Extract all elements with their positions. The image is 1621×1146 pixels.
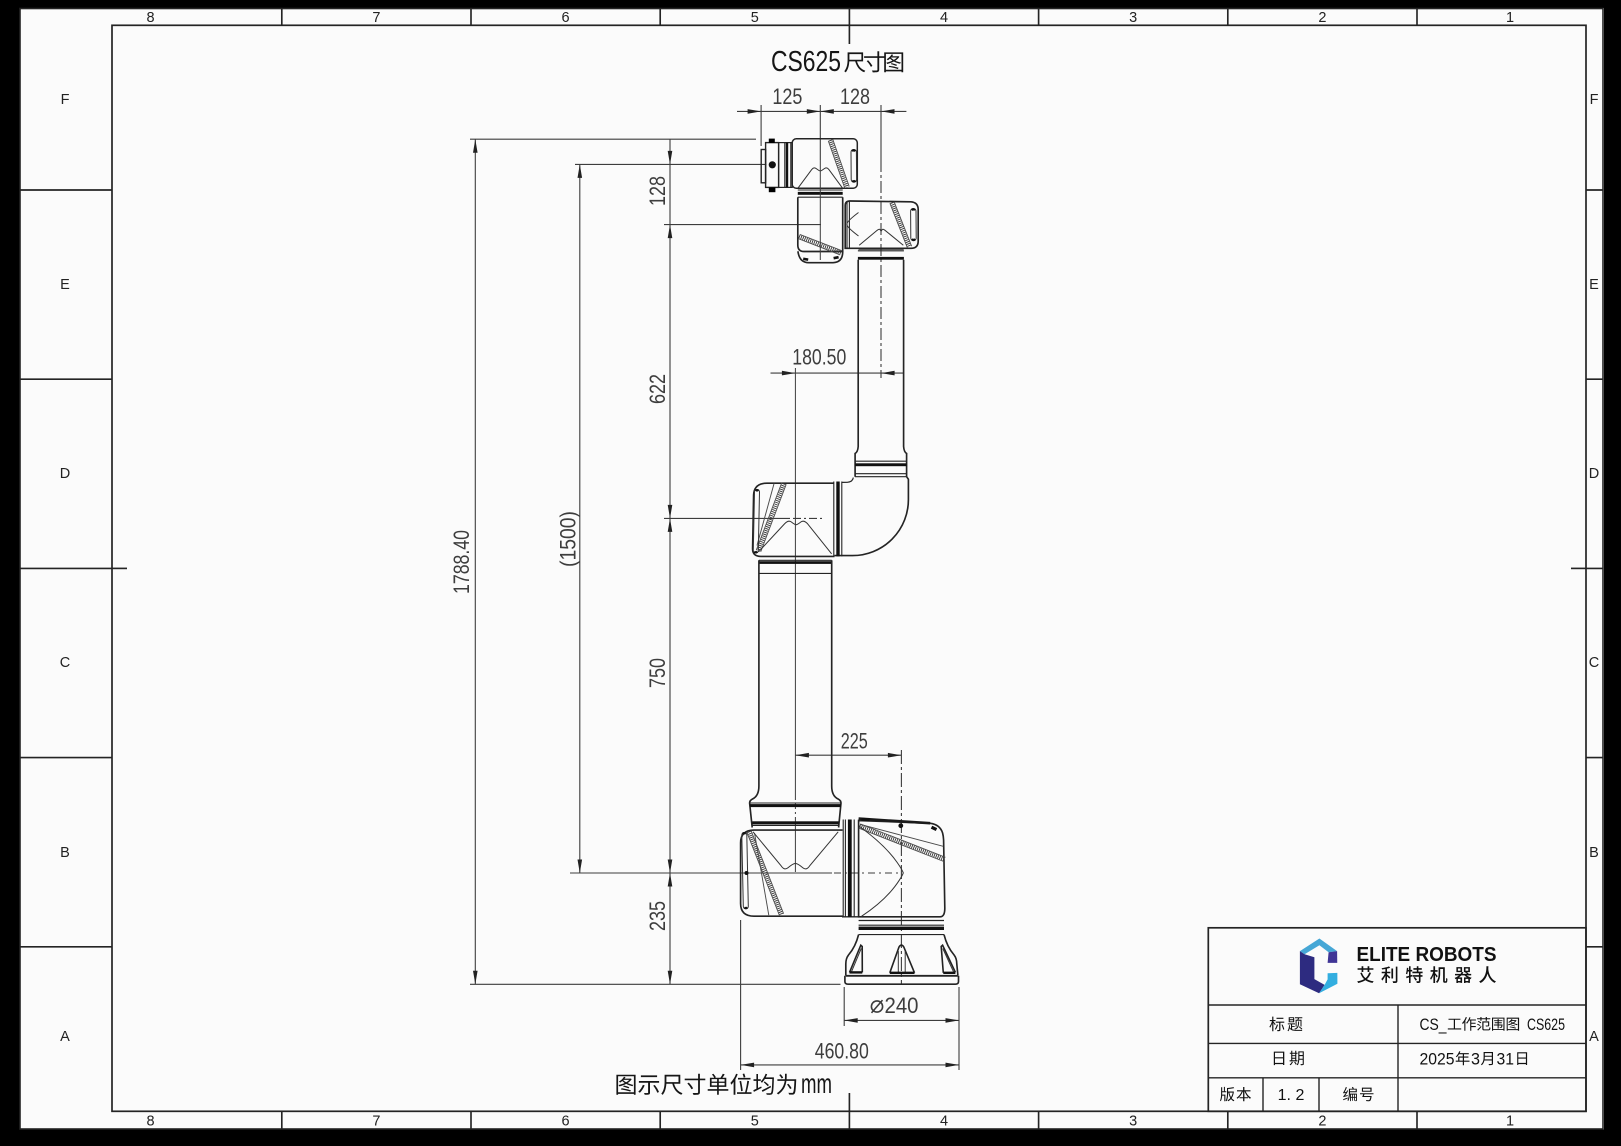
svg-text:CS625: CS625 [1527, 1015, 1565, 1034]
svg-text:128: 128 [645, 176, 670, 206]
svg-text:E: E [1589, 277, 1599, 293]
svg-text:8: 8 [146, 1114, 154, 1130]
svg-text:2: 2 [1318, 10, 1326, 26]
svg-text:240: 240 [885, 993, 919, 1018]
svg-text:C: C [60, 655, 70, 671]
svg-text:A: A [1589, 1029, 1599, 1045]
svg-text:A: A [60, 1029, 70, 1045]
svg-text:235: 235 [645, 901, 670, 931]
svg-text:F: F [61, 92, 70, 108]
svg-text:ELITE ROBOTS: ELITE ROBOTS [1357, 944, 1497, 966]
svg-text:750: 750 [645, 658, 670, 688]
svg-text:7: 7 [372, 1114, 380, 1130]
svg-text:6: 6 [562, 1114, 570, 1130]
svg-text:1788.40: 1788.40 [449, 530, 474, 594]
svg-text:125: 125 [772, 84, 802, 109]
svg-text:mm: mm [801, 1068, 832, 1099]
svg-text:B: B [60, 845, 70, 861]
svg-text:5: 5 [751, 1114, 759, 1130]
svg-text:3: 3 [1471, 1050, 1480, 1069]
svg-text:D: D [1589, 466, 1599, 482]
svg-text:F: F [1590, 92, 1599, 108]
svg-text:622: 622 [645, 374, 670, 404]
svg-text:5: 5 [751, 10, 759, 26]
svg-text:4: 4 [940, 10, 948, 26]
svg-text:4: 4 [940, 1114, 948, 1130]
svg-text:225: 225 [841, 729, 868, 754]
svg-text:2: 2 [1318, 1114, 1326, 1130]
svg-text:E: E [60, 277, 70, 293]
svg-text:C: C [1589, 655, 1599, 671]
svg-text:3: 3 [1129, 1114, 1137, 1130]
svg-text:460.80: 460.80 [815, 1039, 869, 1064]
svg-text:1. 2: 1. 2 [1278, 1087, 1305, 1104]
svg-text:128: 128 [840, 84, 870, 109]
svg-text:8: 8 [146, 10, 154, 26]
svg-text:7: 7 [372, 10, 380, 26]
svg-text:B: B [1589, 845, 1599, 861]
svg-text:1: 1 [1506, 10, 1514, 26]
svg-text:31: 31 [1497, 1050, 1515, 1069]
svg-text:2025: 2025 [1420, 1050, 1455, 1069]
svg-text:6: 6 [562, 10, 570, 26]
svg-text:D: D [60, 466, 70, 482]
svg-text:1: 1 [1506, 1114, 1514, 1130]
svg-text:3: 3 [1129, 10, 1137, 26]
svg-text:(1500): (1500) [556, 511, 581, 567]
svg-text:CS_: CS_ [1420, 1015, 1447, 1034]
svg-text:CS625: CS625 [771, 46, 841, 78]
svg-text:180.50: 180.50 [792, 345, 846, 370]
